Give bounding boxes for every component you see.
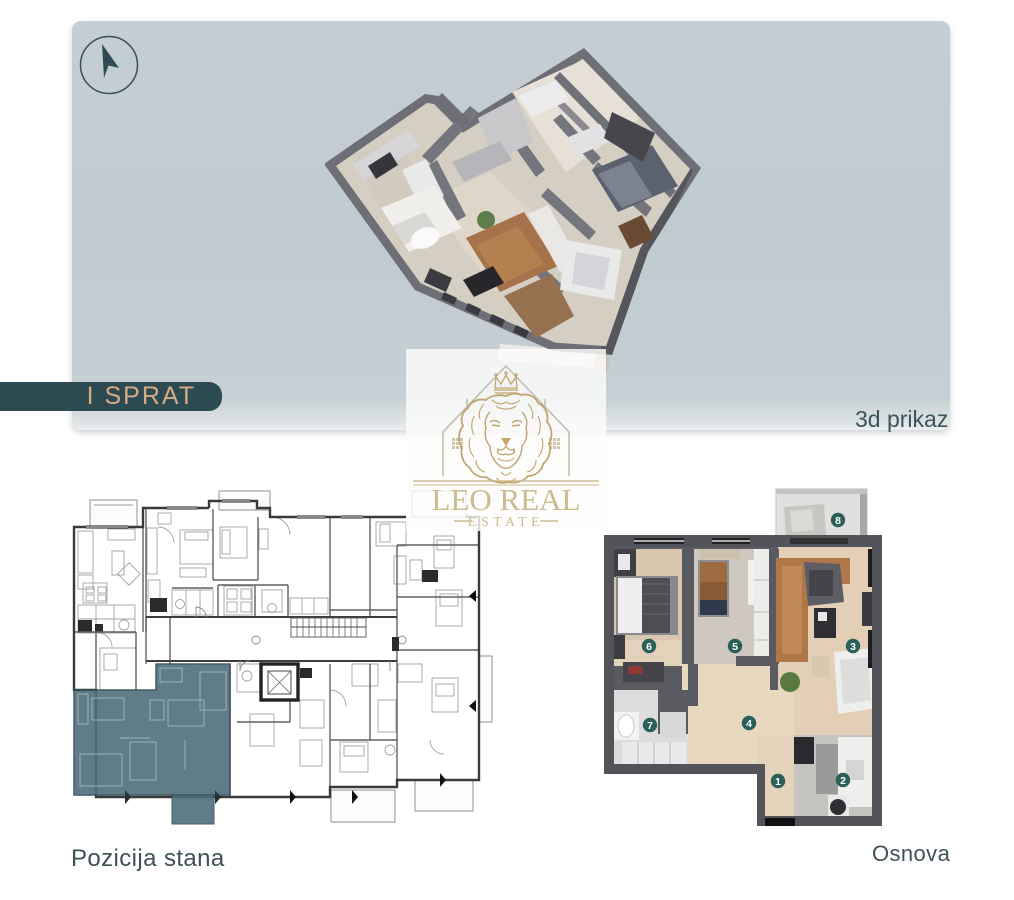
svg-text:7: 7 (647, 720, 653, 732)
svg-text:6: 6 (646, 641, 652, 653)
svg-text:4: 4 (746, 718, 752, 730)
svg-text:2: 2 (840, 775, 846, 787)
svg-text:8: 8 (835, 515, 841, 527)
svg-text:3: 3 (850, 641, 856, 653)
svg-text:ESTATE: ESTATE (468, 515, 544, 530)
svg-text:LEO REAL: LEO REAL (432, 482, 581, 517)
svg-text:5: 5 (732, 641, 738, 653)
svg-text:1: 1 (775, 776, 781, 788)
